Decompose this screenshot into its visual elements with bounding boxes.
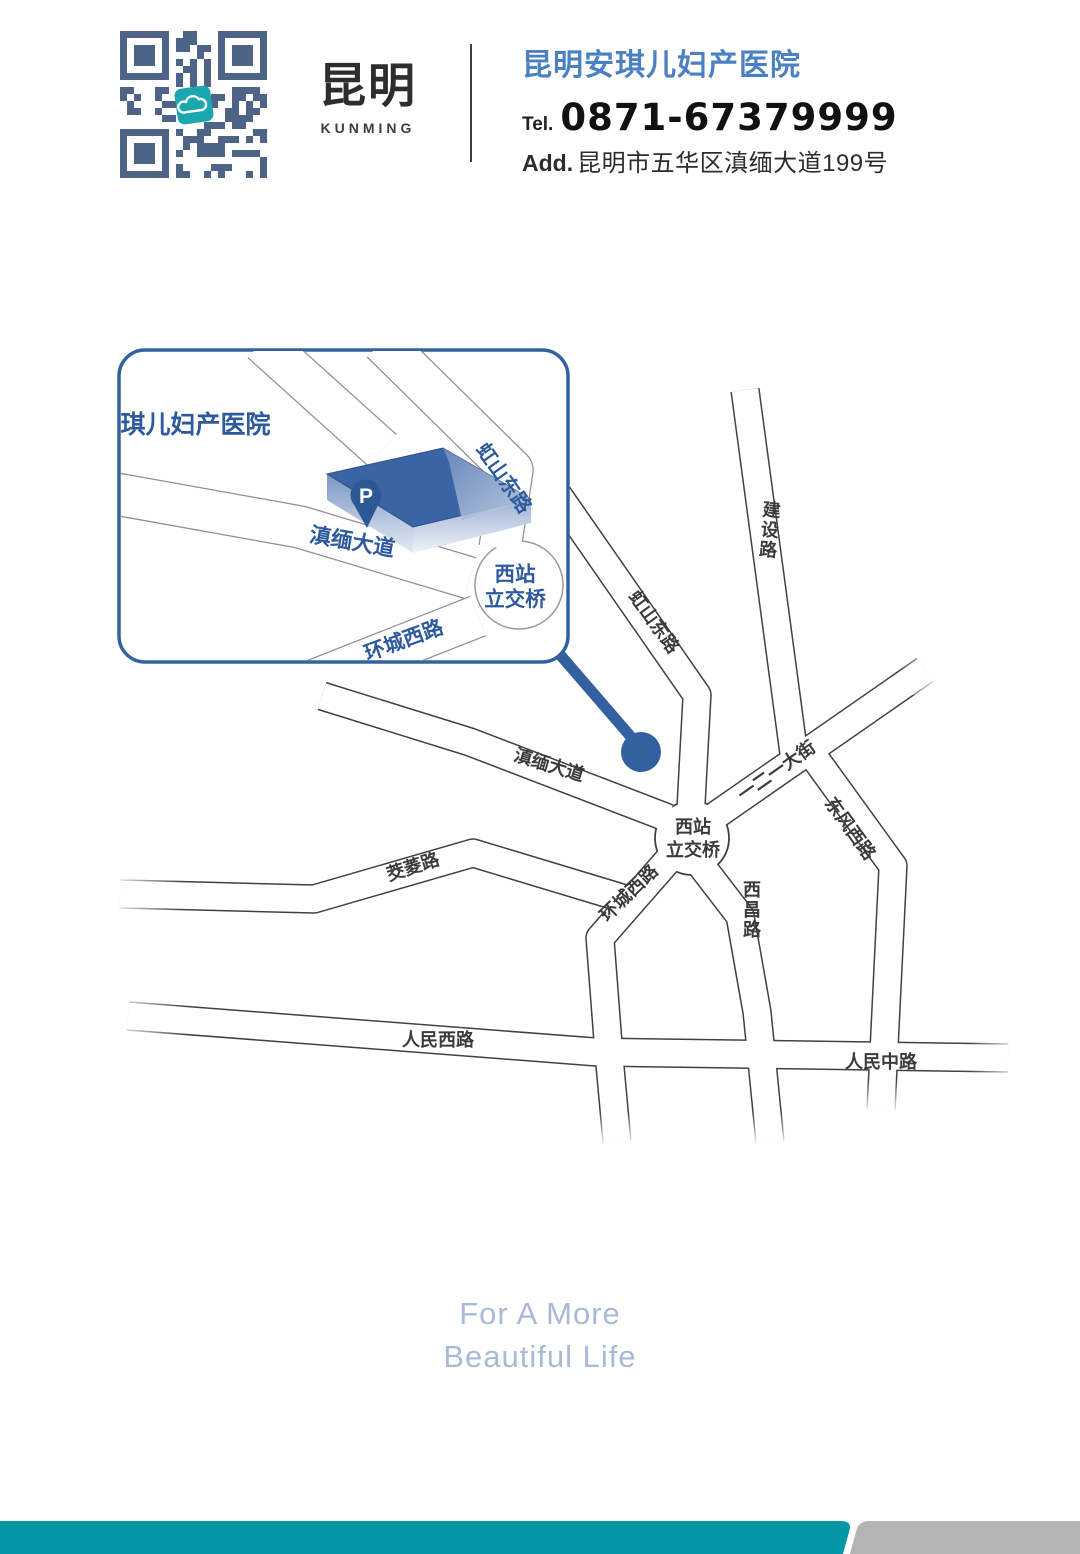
interchange-label-line1: 西站 [675, 816, 711, 837]
road-fade [108, 988, 188, 1038]
vertical-divider [470, 44, 472, 162]
road-fade [583, 1112, 643, 1146]
road-fade [738, 1112, 798, 1146]
brand-name-cn: 昆明 [308, 60, 428, 112]
slogan: For A More Beautiful Life [0, 1292, 1080, 1378]
address-row: Add. 昆明市五华区滇缅大道199号 [522, 143, 898, 178]
teal-bar [0, 1521, 850, 1554]
address-text: 昆明市五华区滇缅大道199号 [577, 143, 888, 178]
inset-title: 昆明安琪儿妇产医院 [45, 410, 270, 439]
tel-label: Tel. [522, 114, 553, 136]
brand-name-en: KUNMING [308, 120, 428, 136]
road-fade [108, 865, 183, 915]
brand-block: 昆明 KUNMING [308, 60, 428, 136]
interchange-label-line2: 立交桥 [666, 839, 721, 860]
connector-line [556, 650, 638, 745]
road-label-xichang: 西昌路 [741, 880, 761, 940]
qr-code [120, 31, 268, 179]
inset-interchange-label-line2: 立交桥 [484, 587, 546, 611]
road-label-renmin-middle: 人民中路 [845, 1051, 918, 1072]
parking-letter: P [359, 485, 373, 508]
address-label: Add. [522, 150, 573, 177]
page: 昆明 KUNMING 昆明安琪儿妇产医院 Tel. 0871-67379999 … [0, 0, 1080, 1554]
road-map: 建设路 虹山东路 滇缅大道 一二一大街 东风西路 西站 立交桥 环城西路 西昌路… [0, 330, 1080, 1160]
gray-bar [850, 1521, 1080, 1554]
road-fade [968, 1030, 1023, 1082]
slogan-line2: Beautiful Life [0, 1335, 1080, 1378]
hospital-name: 昆明安琪儿妇产医院 [522, 40, 898, 84]
location-dot [621, 732, 661, 772]
bottom-bars [0, 1514, 1080, 1554]
road-fade [852, 1080, 912, 1114]
hospital-info: 昆明安琪儿妇产医院 Tel. 0871-67379999 Add. 昆明市五华区… [522, 40, 898, 178]
road-label-renmin-west: 人民西路 [402, 1029, 475, 1050]
cloud-icon [174, 85, 215, 126]
inset-interchange-label-line1: 西站 [495, 562, 536, 586]
tel-row: Tel. 0871-67379999 [522, 96, 898, 139]
tel-number: 0871-67379999 [560, 96, 897, 139]
slogan-line1: For A More [0, 1292, 1080, 1335]
road-fade [898, 655, 943, 695]
